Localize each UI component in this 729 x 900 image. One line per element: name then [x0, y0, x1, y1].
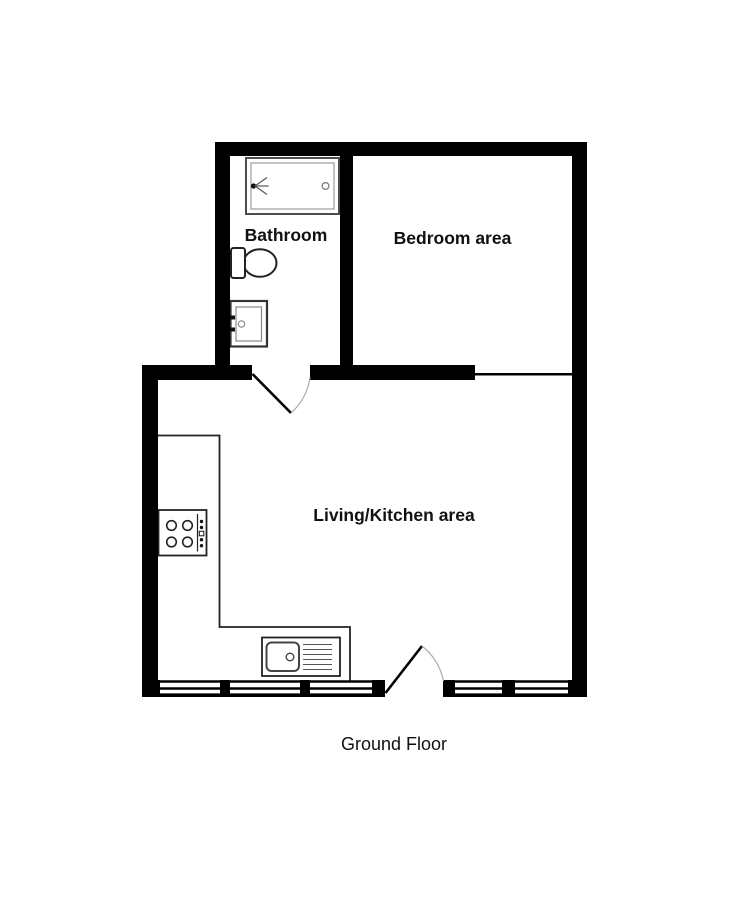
sink-drain: [286, 653, 294, 661]
floor-plan: Bathroom Bedroom area Living/Kitchen are…: [0, 0, 729, 900]
wall-bottom-corner-left: [142, 680, 160, 697]
living-kitchen-label: Living/Kitchen area: [313, 505, 475, 525]
bathtub-shower-icon: [246, 158, 339, 214]
hob-icon: [159, 510, 207, 556]
toilet-cistern: [231, 248, 245, 278]
divider-bedroom-living-line: [475, 373, 572, 376]
wall-bottom-mullion: [372, 680, 385, 697]
bedroom-label: Bedroom area: [394, 228, 512, 248]
wall-bathroom-bottom: [142, 365, 252, 380]
wall-top: [215, 142, 587, 156]
toilet-icon: [231, 248, 277, 278]
plan-background: [0, 0, 729, 900]
wall-bedroom-bottom: [310, 365, 475, 380]
bathroom-label: Bathroom: [245, 225, 328, 245]
wall-bottom-corner-right: [568, 680, 587, 697]
kitchen-sink-drainer-icon: [262, 638, 340, 677]
bath-drain: [322, 183, 329, 190]
floor-title: Ground Floor: [341, 734, 447, 754]
wall-bottom-door-jamb: [443, 680, 455, 697]
floor-plan-canvas: Bathroom Bedroom area Living/Kitchen are…: [0, 0, 729, 900]
wall-bottom-mullion: [502, 680, 515, 697]
wall-bathroom-bedroom: [340, 155, 353, 380]
wash-basin-icon: [227, 301, 268, 347]
wall-bottom-mullion: [220, 680, 230, 697]
toilet-bowl: [244, 249, 277, 277]
wall-right: [572, 142, 587, 697]
wall-living-left: [142, 365, 158, 697]
wall-bathroom-left: [215, 142, 230, 380]
wall-bottom-mullion: [300, 680, 310, 697]
